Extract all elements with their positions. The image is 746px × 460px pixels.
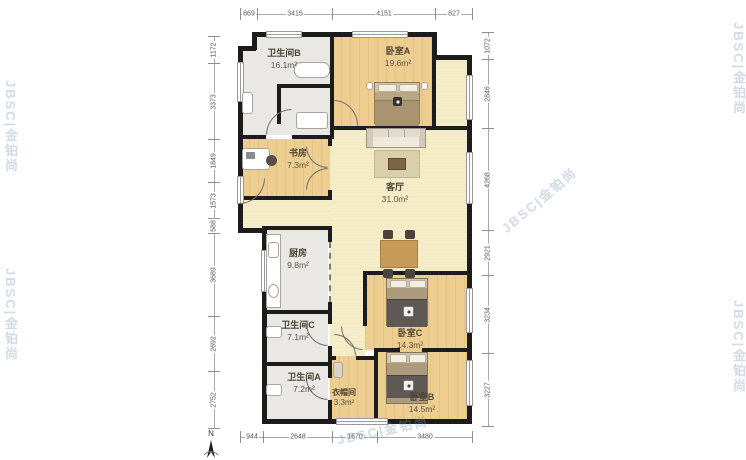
dim-seg: 1072 [482,32,494,59]
wall-bathroomB-bottom-b [292,135,332,139]
window-bottom [336,418,388,425]
dim-label: 1849 [211,152,218,170]
room-label-study: 书房 7.3m² [266,148,330,171]
dim-label: 3373 [211,93,218,111]
room-area: 14.5m² [390,404,454,415]
dim-seg: 588 [208,218,220,233]
room-area: 14.3m² [378,340,442,351]
room-label-living-room: 客厅 31.0m² [363,182,427,205]
dining-chair-2 [405,230,415,239]
dim-label: 2752 [211,391,218,409]
room-name: 卫生间A [287,372,321,382]
window-living-right [466,152,473,204]
dining-chair-1 [383,230,393,239]
dim-label: 1670 [346,434,364,441]
dim-seg: 3415 [257,8,332,20]
dim-label: 2692 [211,335,218,353]
dim-label: 869 [242,11,256,18]
room-area: 16.1m² [252,60,316,71]
nightstand-right [421,82,428,90]
room-label-bathroom-b: 卫生间B 16.1m² [252,48,316,71]
wall-bathroomC-bathroomA [262,362,330,366]
wall-bathroomB-bottom-a [240,135,266,139]
dim-seg: 4151 [332,8,435,20]
wall-study-right-a [328,137,332,146]
watermark: JBSC|金铂尚 [729,300,746,393]
room-name: 卧室C [398,328,423,338]
dim-seg: 3480 [377,431,473,443]
room-name: 卫生间B [267,48,301,58]
dim-seg: 3234 [482,275,494,353]
dim-seg: 827 [435,8,473,20]
watermark: JBSC|金铂尚 [729,22,746,115]
dim-seg: 2752 [208,371,220,429]
window-bedroomA-right [466,75,473,120]
wall-closet-top-a [330,356,336,360]
wall-bedroomA-right [432,58,436,126]
dining-chair-4 [405,269,415,278]
wall-closet-top-b [356,356,376,360]
room-name: 卧室B [410,392,435,402]
nightstand-left [366,82,373,90]
room-label-bedroom-a: 卧室A 19.6m² [366,46,430,69]
wall-bedroomC-left [363,271,367,326]
wall-bedroomC-top [363,271,467,275]
vanity-icon [296,112,328,129]
room-label-bedroom-b: 卧室B 14.5m² [390,392,454,415]
wall-bathroomC-top [262,310,330,314]
dim-seg: 2921 [482,230,494,275]
dim-seg: 3227 [482,353,494,427]
watermark: JBSC|金铂尚 [1,268,20,361]
dim-seg: 2692 [208,316,220,371]
room-name: 卧室A [386,46,411,56]
window-bedroomB-right [466,360,473,406]
toilet-icon [242,92,253,114]
dim-seg: 3689 [208,233,220,316]
dim-seg: 1849 [208,139,220,182]
room-label-closet: 衣帽间 3.3m² [320,388,368,409]
room-area: 9.8m² [266,260,330,271]
monitor-icon [246,152,255,159]
compass-icon: N [200,430,222,460]
dim-label: 944 [245,434,259,441]
room-label-bedroom-c: 卧室C 14.3m² [378,328,442,351]
room-name: 书房 [289,148,307,158]
dimension-chain-right: 1072 2846 4268 2921 3234 3227 [482,32,494,427]
compass-needle-icon [200,439,222,460]
dim-seg: 944 [240,431,263,443]
dim-seg: 3373 [208,63,220,139]
bed-icon-bedroomA [374,82,420,124]
room-name: 客厅 [386,182,404,192]
dim-seg: 1670 [332,431,377,443]
wall-top-right-step [432,55,472,60]
coffee-table-icon [388,158,406,170]
dim-label: 2846 [485,85,492,103]
dim-label: 827 [447,11,461,18]
floor-plan: 卫生间B 16.1m² 卧室A 19.6m² 书房 7.3m² 客厅 31.0m… [0,0,746,460]
room-area: 7.3m² [266,160,330,171]
bed-icon-bedroomC [386,278,428,326]
watermark: JBSC|金铂尚 [1,80,20,173]
room-name: 衣帽间 [332,388,356,397]
dim-label: 1072 [485,37,492,55]
dim-seg: 4268 [482,128,494,230]
window-bathroomB-top [266,31,302,38]
room-area: 19.6m² [366,58,430,69]
dim-seg: 869 [240,8,257,20]
window-bedroomA-top [352,31,408,38]
dim-label: 2648 [289,434,307,441]
dining-table-icon [380,240,418,268]
wall-study-right-b [328,190,332,200]
stove-icon [268,284,279,298]
room-label-kitchen: 厨房 9.8m² [266,248,330,271]
dim-label: 3480 [416,434,434,441]
compass-north-label: N [200,430,222,438]
dim-seg: 2846 [482,59,494,128]
dim-label: 1172 [211,41,218,58]
dim-label: 4151 [375,11,393,18]
room-name: 厨房 [289,248,307,258]
dim-label: 2921 [485,244,492,262]
wall-kitchen-top [262,226,332,230]
dim-label: 588 [211,219,218,233]
dim-seg: 1573 [208,182,220,218]
living-niche-floor [432,58,467,128]
room-name: 卫生间C [281,320,315,330]
wall-bathroomB-partition-h [277,84,332,88]
dining-chair-3 [383,269,393,278]
dim-label: 3234 [485,306,492,324]
watermark: JBSC|金铂尚 [497,162,581,237]
dimension-chain-bottom: 944 2648 1670 3480 [240,431,473,443]
sofa-icon [366,128,426,148]
room-area: 31.0m² [363,194,427,205]
dim-label: 3415 [286,11,304,18]
room-area: 3.3m² [320,398,368,408]
dimension-chain-top: 869 3415 4151 827 [240,8,473,20]
room-area: 7.1m² [266,332,330,343]
room-label-bathroom-c: 卫生间C 7.1m² [266,320,330,343]
dimension-chain-left: 1172 3373 1849 1573 588 3689 2692 2752 [208,36,220,429]
dim-label: 1573 [211,192,218,210]
dim-label: 3227 [485,381,492,399]
wall-top-right-step-v [432,32,437,60]
dim-seg: 1172 [208,36,220,63]
wall-kitchen-right-a [328,226,332,242]
window-bedroomC-right [466,288,473,333]
dim-label: 4268 [485,171,492,189]
wall-bedroomA-bottom-a [332,126,356,130]
dim-label: 3689 [211,266,218,284]
dim-seg: 2648 [263,431,332,443]
